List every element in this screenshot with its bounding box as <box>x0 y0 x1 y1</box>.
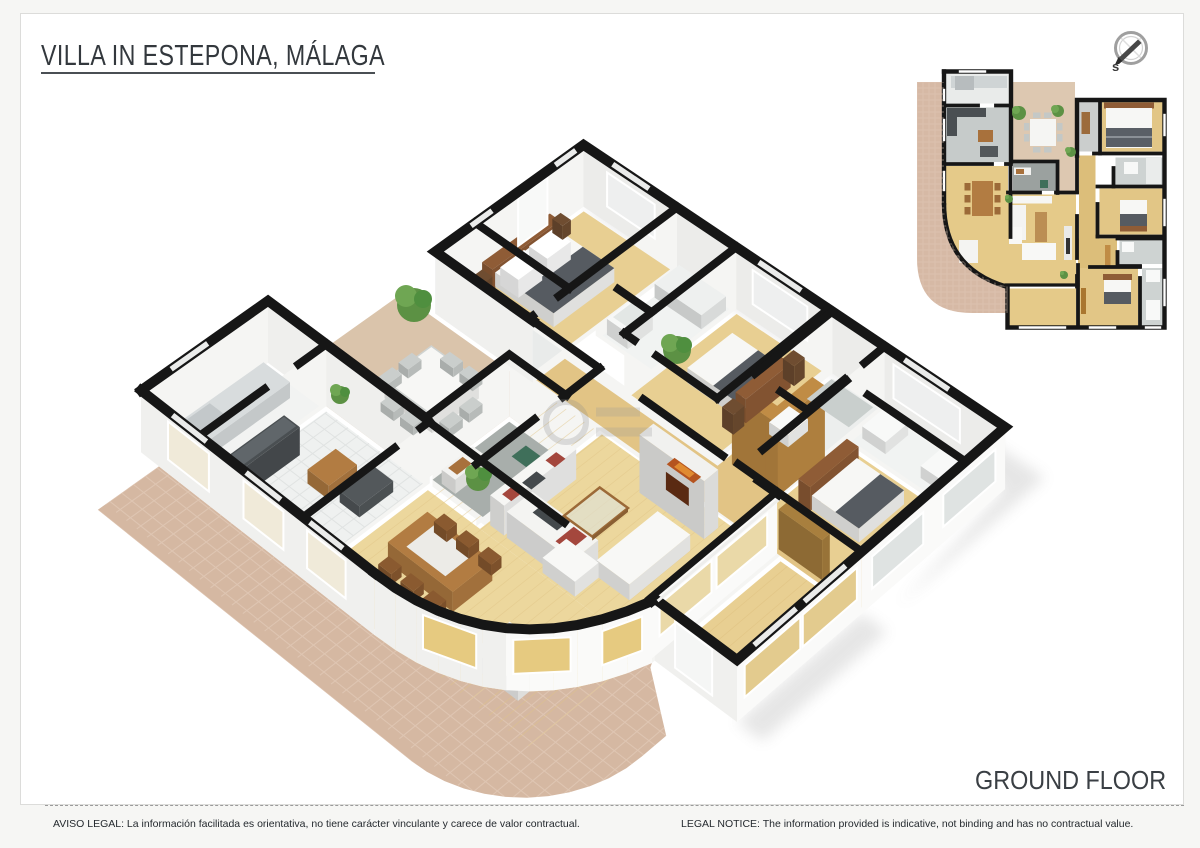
svg-text:s: s <box>1112 59 1119 74</box>
